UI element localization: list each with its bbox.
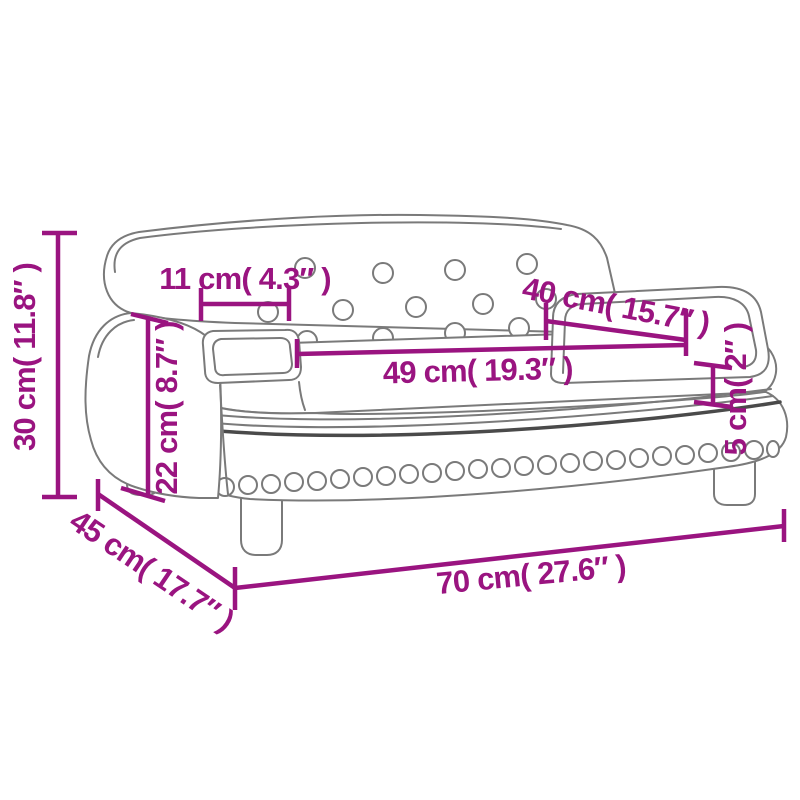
dimension-label: 11 cm( 4.3″ ) [159,261,331,296]
stud [767,441,779,457]
sofa-dimension-diagram: 30 cm( 11.8″ ) 11 cm( 4.3″ ) 40 cm( 15.7… [0,0,800,800]
stud [699,444,717,462]
stud [308,472,326,490]
dimension-label: 22 cm( 8.7″ ) [149,321,184,494]
stud [331,470,349,488]
stud [538,456,556,474]
stud [377,467,395,485]
leg-front-left [241,492,282,555]
stud [400,465,418,483]
dimension-total-width: 70 cm( 27.6″ ) [235,509,784,610]
stud [354,468,372,486]
stud [584,452,602,470]
stud [262,475,280,493]
stud [469,460,487,478]
tufting-button [473,294,493,314]
stud [630,449,648,467]
stud [239,476,257,494]
dimension-label: 49 cm( 19.3″ ) [382,351,573,391]
stud [676,446,694,464]
stud [561,454,579,472]
stud [607,451,625,469]
dimension-label: 30 cm( 11.8″ ) [7,263,42,451]
stud [423,464,441,482]
tufting-button [445,260,465,280]
stud [285,473,303,491]
dimension-total-height: 30 cm( 11.8″ ) [7,233,77,497]
tufting-button [406,297,426,317]
tufting-button [333,300,353,320]
stud [492,459,510,477]
tufting-button [373,263,393,283]
diagram-canvas: 30 cm( 11.8″ ) 11 cm( 4.3″ ) 40 cm( 15.7… [0,0,800,800]
dimension-label: 45 cm( 17.7″ ) [63,503,240,638]
stud [446,462,464,480]
dimension-total-depth: 45 cm( 17.7″ ) [63,479,240,638]
stud [653,447,671,465]
dimension-label: 70 cm( 27.6″ ) [435,548,627,601]
dimension-label: 5 cm( 2″ ) [718,323,753,456]
stud [515,457,533,475]
